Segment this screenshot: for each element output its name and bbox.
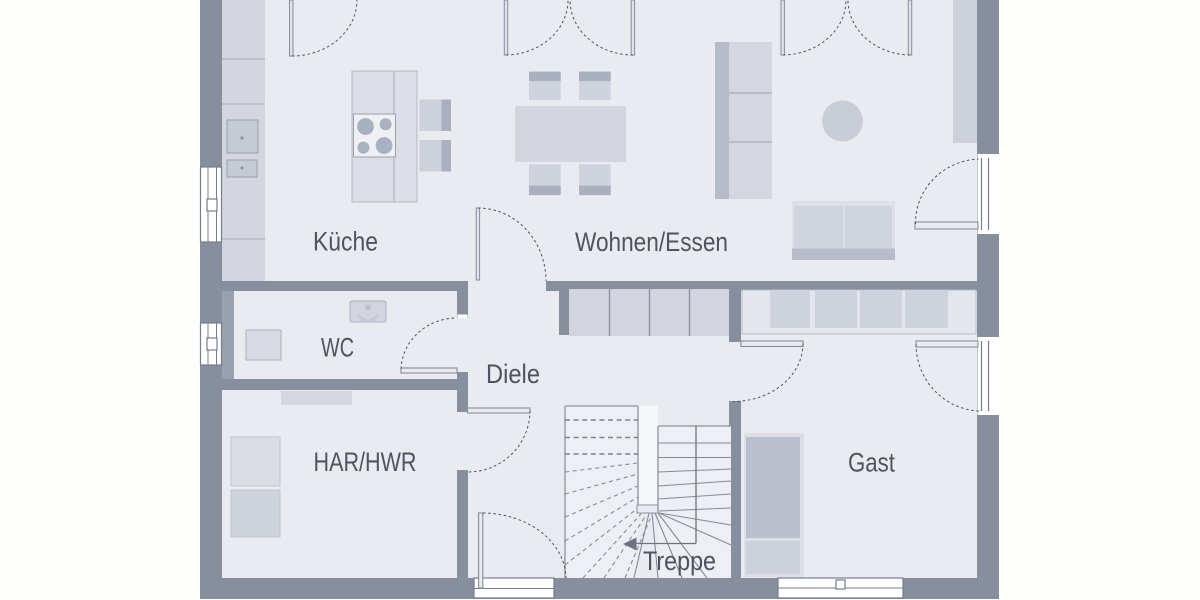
- svg-text:WC: WC: [321, 333, 354, 363]
- svg-text:Küche: Küche: [313, 227, 378, 257]
- svg-text:Gast: Gast: [848, 448, 895, 478]
- svg-text:Diele: Diele: [486, 359, 540, 389]
- svg-text:Treppe: Treppe: [643, 546, 716, 576]
- svg-text:Wohnen/Essen: Wohnen/Essen: [575, 227, 728, 257]
- svg-text:HAR/HWR: HAR/HWR: [314, 447, 417, 477]
